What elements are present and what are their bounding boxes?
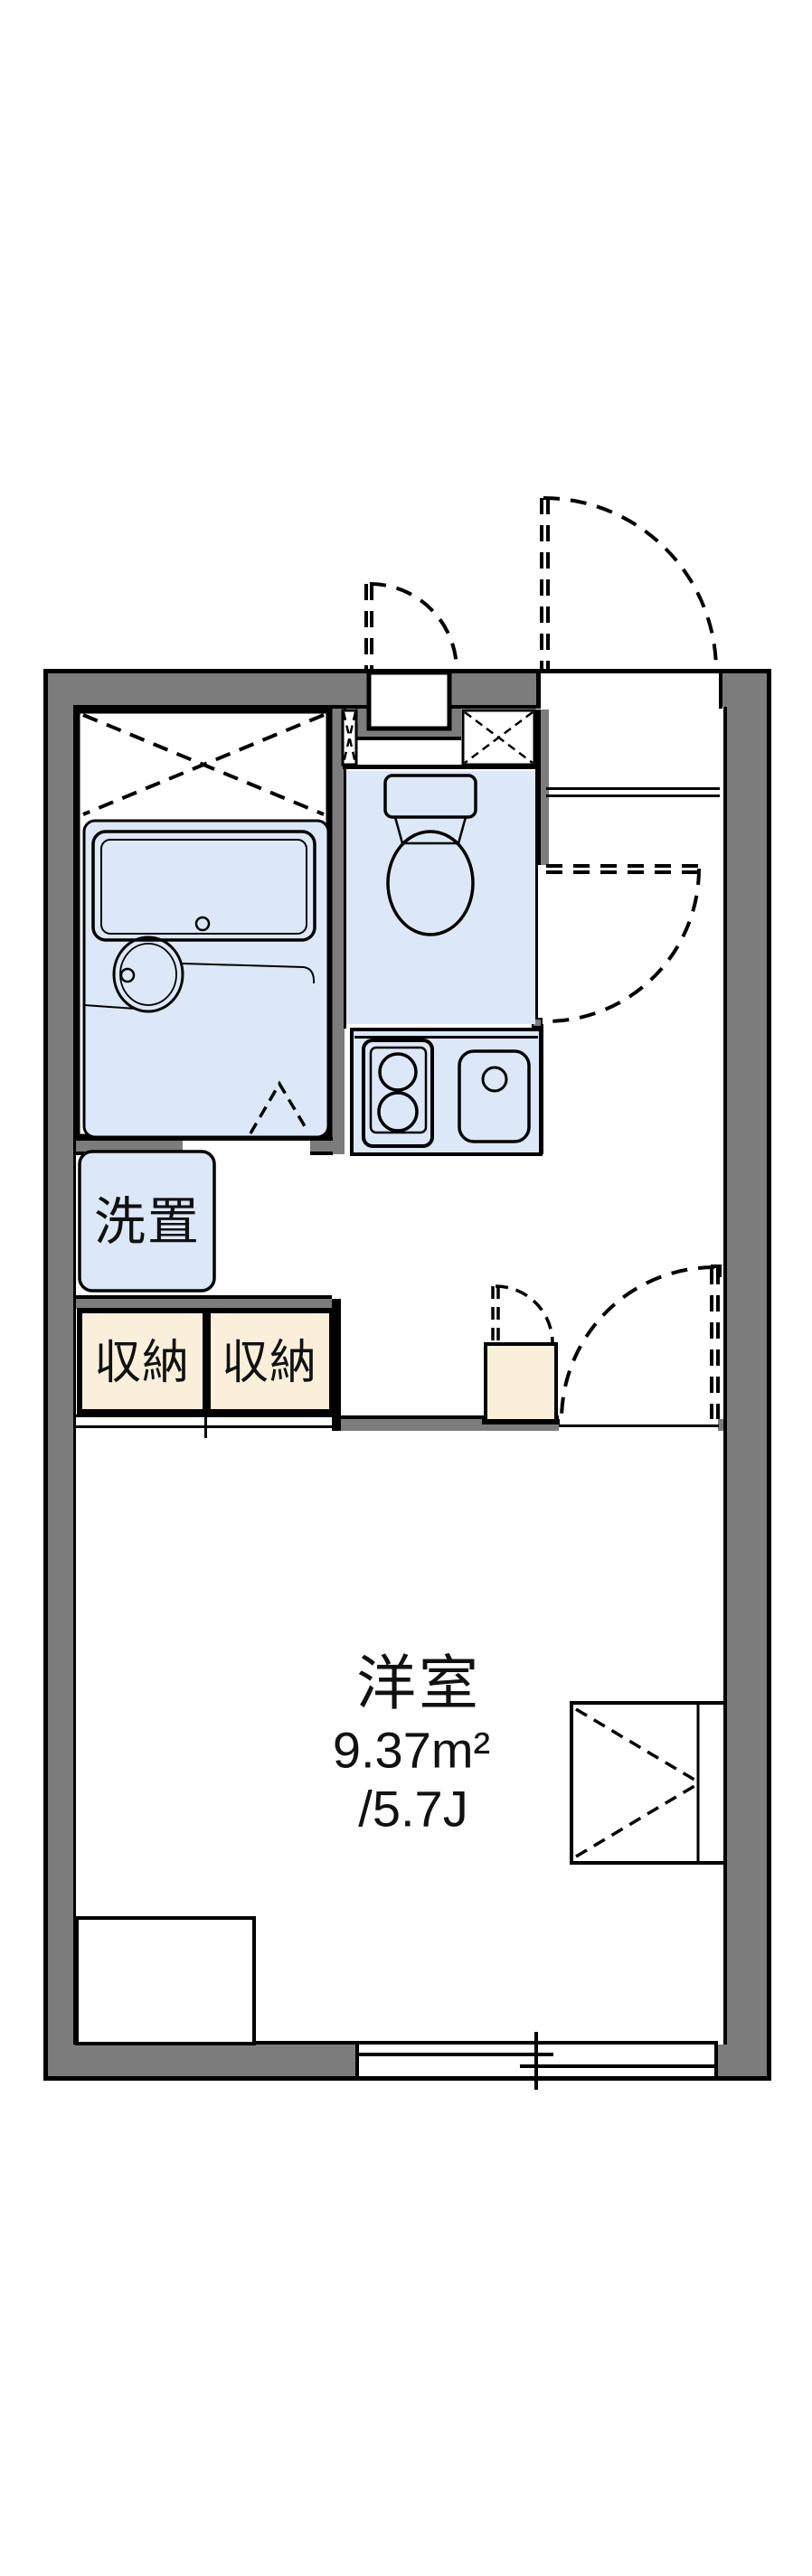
floor-plan-page: 洗置 収納 収納 洋室 9.37m² /5.7J — [0, 0, 812, 2576]
entry-recess-door — [369, 672, 449, 729]
outer-edge-right — [767, 669, 771, 2081]
western-room: 洋室 9.37m² /5.7J — [77, 1650, 725, 2044]
floor-plan-svg: 洗置 収納 収納 洋室 9.37m² /5.7J — [0, 0, 812, 2576]
window-sash-line-2 — [520, 2064, 714, 2068]
bath-band-bottom-right — [310, 1152, 333, 1155]
window-bottom-right-jamb — [714, 2041, 718, 2077]
toilet-door-arc — [546, 869, 699, 1021]
genkan-step-line-1 — [546, 787, 720, 790]
front-door-arc — [543, 498, 716, 671]
room-area-m2-label: 9.37m² — [333, 1722, 490, 1779]
utility-door-arc — [496, 1286, 552, 1343]
side-window-box — [571, 1703, 725, 1863]
bed-rectangle — [77, 1918, 254, 2044]
toilet-wall-core — [535, 710, 541, 865]
wall-right — [727, 672, 768, 2077]
laundry-label: 洗置 — [94, 1193, 201, 1251]
recess-door-arc — [370, 584, 457, 671]
wall-closet-top-band — [73, 1299, 332, 1309]
entry-recess-door-swing — [366, 584, 457, 671]
wall-bath-bottom-left — [76, 1141, 183, 1152]
entry-opening-left-jamb — [536, 669, 541, 709]
closet-slide-line-2 — [76, 1425, 332, 1428]
entry-recess-bottom-line — [354, 737, 461, 740]
bathroom-crossmark — [83, 715, 324, 814]
wall-bath-toilet-separator — [332, 707, 345, 1154]
utility-box — [486, 1344, 556, 1421]
entry-opening-right-jamb — [719, 669, 722, 709]
window-center-tick — [534, 2032, 538, 2090]
wall-bottom-right-corner — [718, 2045, 768, 2077]
wall-top-left — [47, 672, 540, 706]
toilet-door-swing — [546, 866, 699, 1021]
wall-left — [47, 672, 73, 2077]
toilet-bowl — [388, 832, 473, 935]
toilet-fixture — [385, 776, 476, 935]
bathroom-unit — [77, 710, 329, 1137]
toilet-door-opening-edge — [535, 865, 538, 1024]
outer-edge-left — [43, 669, 48, 2081]
room-door-threshold — [559, 1424, 719, 1427]
storage-left-label: 収納 — [94, 1337, 190, 1389]
toilet-tank — [385, 776, 476, 817]
kitchen-counter-back-line — [354, 1036, 538, 1039]
window-sash-line-1 — [359, 2053, 553, 2056]
wall-bath-bottom-right — [310, 1141, 333, 1152]
closet-band-top-line — [73, 1295, 332, 1299]
storage-right-label: 収納 — [222, 1337, 317, 1389]
room-area-tatami-label: /5.7J — [358, 1781, 467, 1838]
closet-slide-line-1 — [76, 1415, 332, 1417]
utility-box-door-swing — [493, 1286, 552, 1343]
outer-edge-bottom — [43, 2076, 771, 2081]
room-name-label: 洋室 — [356, 1650, 481, 1716]
laundry-space: 洗置 — [80, 1152, 214, 1291]
side-window-unit — [571, 1703, 725, 1863]
kitchen-counter — [352, 1029, 541, 1154]
window-bottom-left-jamb — [355, 2041, 359, 2077]
storage-closets: 収納 収納 — [80, 1311, 332, 1412]
genkan-step-line-2 — [546, 794, 720, 797]
toilet-room — [343, 710, 535, 1024]
front-door-swing — [542, 498, 716, 671]
room-door-arc — [562, 1267, 714, 1420]
room-door-swing — [562, 1267, 718, 1420]
wall-bottom-left — [47, 2045, 355, 2077]
